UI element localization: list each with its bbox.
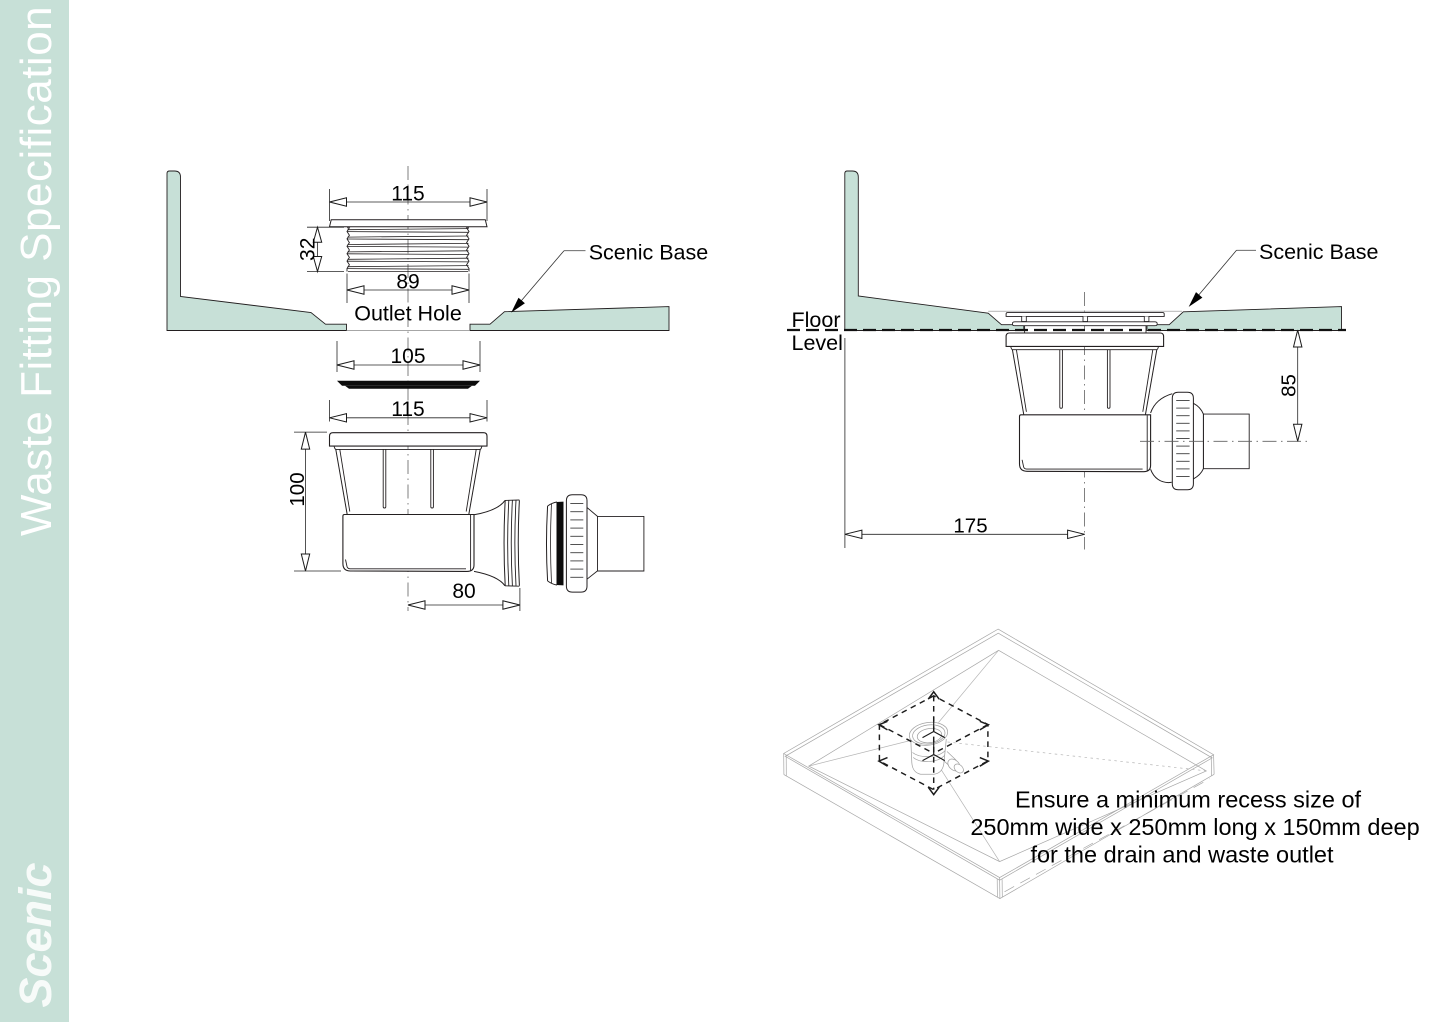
svg-text:105: 105 [390, 345, 425, 368]
svg-text:100: 100 [286, 472, 309, 506]
svg-text:85: 85 [1278, 374, 1301, 397]
svg-text:Level: Level [792, 331, 843, 355]
svg-text:32: 32 [297, 238, 320, 261]
svg-text:250mm wide x 250mm long x 150m: 250mm wide x 250mm long x 150mm deep [970, 814, 1419, 840]
svg-text:115: 115 [391, 398, 424, 421]
svg-text:Floor: Floor [792, 308, 841, 332]
svg-text:175: 175 [953, 514, 987, 537]
svg-text:89: 89 [396, 270, 419, 293]
svg-text:80: 80 [452, 580, 475, 603]
svg-text:Scenic Base: Scenic Base [1259, 240, 1379, 264]
svg-text:Outlet Hole: Outlet Hole [354, 302, 462, 326]
svg-text:for the drain and waste outlet: for the drain and waste outlet [1030, 841, 1334, 867]
svg-text:115: 115 [391, 182, 424, 205]
svg-text:Scenic Base: Scenic Base [589, 240, 709, 264]
svg-text:Ensure a minimum recess size o: Ensure a minimum recess size of [1015, 787, 1362, 813]
